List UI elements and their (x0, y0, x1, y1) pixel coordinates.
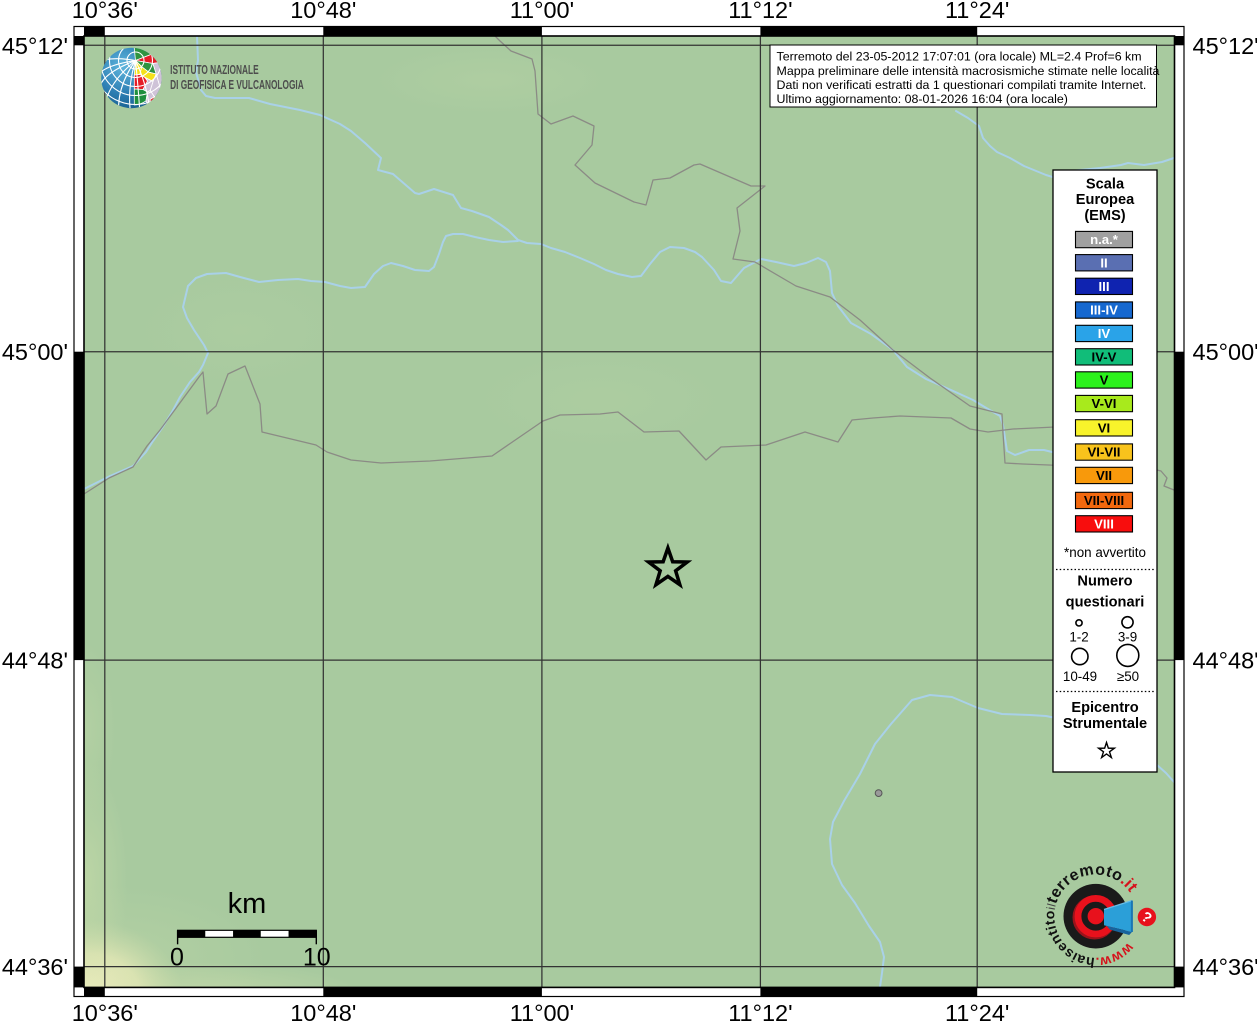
svg-text:11°00': 11°00' (510, 0, 574, 23)
svg-text:*non avvertito: *non avvertito (1064, 545, 1146, 560)
svg-text:44°48': 44°48' (1193, 648, 1257, 674)
svg-text:VI-VII: VI-VII (1088, 445, 1121, 460)
svg-text:45°00': 45°00' (2, 339, 68, 365)
svg-text:V: V (1100, 373, 1109, 388)
svg-text:n.a.*: n.a.* (1090, 232, 1119, 247)
svg-text:Scala: Scala (1086, 177, 1125, 193)
svg-text:(EMS): (EMS) (1084, 208, 1125, 224)
svg-text:Terremoto del 23-05-2012 17:07: Terremoto del 23-05-2012 17:07:01 (ora l… (777, 50, 1142, 64)
svg-text:44°48': 44°48' (2, 648, 68, 674)
svg-text:Dati non verificati estratti d: Dati non verificati estratti da 1 questi… (777, 78, 1147, 92)
svg-text:VIII: VIII (1094, 517, 1114, 532)
svg-text:Ultimo aggiornamento: 08-01-20: Ultimo aggiornamento: 08-01-2026 16:04 (… (777, 92, 1068, 106)
svg-text:V-VI: V-VI (1092, 396, 1117, 411)
svg-text:≥50: ≥50 (1117, 669, 1139, 684)
svg-text:10: 10 (303, 944, 331, 972)
svg-text:VI: VI (1098, 421, 1110, 436)
svg-text:1-2: 1-2 (1069, 630, 1088, 645)
svg-text:10°48': 10°48' (290, 1000, 356, 1024)
svg-text:III: III (1099, 279, 1110, 294)
svg-text:10-49: 10-49 (1063, 669, 1097, 684)
svg-text:45°12': 45°12' (2, 33, 68, 59)
svg-text:ISTITUTO NAZIONALE: ISTITUTO NAZIONALE (170, 63, 258, 77)
svg-text:44°36': 44°36' (1193, 954, 1257, 980)
svg-text:IV: IV (1098, 326, 1111, 341)
svg-text:11°24': 11°24' (945, 1000, 1009, 1024)
svg-text:km: km (228, 888, 267, 920)
svg-text:45°12': 45°12' (1193, 33, 1257, 59)
svg-text:DI GEOFISICA E VULCANOLOGIA: DI GEOFISICA E VULCANOLOGIA (170, 78, 304, 92)
svg-text:Numero: Numero (1077, 574, 1132, 590)
svg-text:10°36': 10°36' (72, 0, 138, 23)
svg-text:VII: VII (1096, 468, 1112, 483)
svg-text:10°36': 10°36' (72, 1000, 138, 1024)
svg-text:0: 0 (170, 944, 184, 972)
svg-text:11°24': 11°24' (945, 0, 1009, 23)
svg-text:IV-V: IV-V (1092, 350, 1117, 365)
svg-text:Epicentro: Epicentro (1071, 700, 1138, 716)
svg-text:III-IV: III-IV (1090, 303, 1118, 318)
svg-text:Europea: Europea (1076, 192, 1135, 208)
svg-text:Mappa preliminare delle intens: Mappa preliminare delle intensità macros… (777, 64, 1160, 78)
svg-text:3-9: 3-9 (1118, 630, 1137, 645)
svg-text:questionari: questionari (1066, 595, 1145, 611)
svg-text:Strumentale: Strumentale (1063, 716, 1147, 732)
svg-text:44°36': 44°36' (2, 954, 68, 980)
svg-text:11°12': 11°12' (728, 0, 792, 23)
svg-text:11°00': 11°00' (510, 1000, 574, 1024)
svg-text:45°00': 45°00' (1193, 339, 1257, 365)
svg-text:VII-VIII: VII-VIII (1084, 493, 1124, 508)
svg-text:II: II (1100, 255, 1107, 270)
svg-text:10°48': 10°48' (290, 0, 356, 23)
svg-text:11°12': 11°12' (728, 1000, 792, 1024)
